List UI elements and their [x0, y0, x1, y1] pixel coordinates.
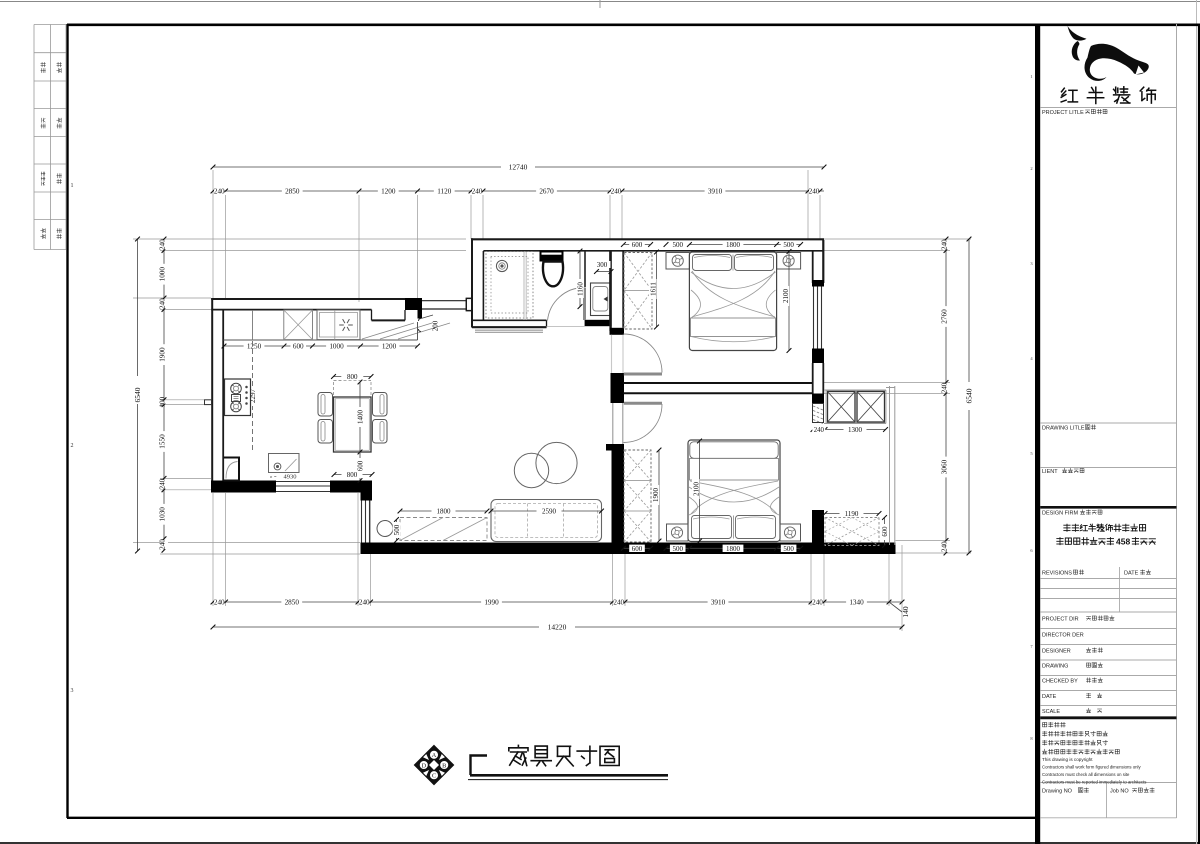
svg-text:1800: 1800	[726, 241, 741, 249]
svg-text:100: 100	[158, 396, 166, 407]
svg-text:2590: 2590	[542, 508, 557, 516]
svg-text:1190: 1190	[845, 510, 859, 518]
svg-text:500: 500	[672, 545, 683, 553]
svg-text:800: 800	[347, 373, 358, 381]
svg-text:240: 240	[809, 188, 820, 196]
svg-text:1: 1	[71, 183, 74, 189]
svg-text:240: 240	[812, 599, 823, 607]
svg-text:DRAWING LITLE: DRAWING LITLE	[1042, 426, 1085, 432]
svg-text:1000: 1000	[329, 343, 344, 351]
svg-text:2850: 2850	[285, 188, 300, 196]
svg-text:Contractors shall work form fi: Contractors shall work form figured dime…	[1042, 765, 1141, 770]
svg-text:200: 200	[432, 320, 440, 331]
svg-text:600: 600	[632, 241, 643, 249]
svg-text:3910: 3910	[708, 188, 723, 196]
svg-text:C: C	[432, 773, 436, 780]
svg-text:1550: 1550	[158, 434, 166, 449]
svg-text:600: 600	[293, 343, 304, 351]
svg-text:LIENT: LIENT	[1042, 469, 1058, 475]
svg-text:500: 500	[672, 241, 683, 249]
svg-text:DATE: DATE	[1042, 694, 1057, 700]
svg-text:458: 458	[1116, 537, 1130, 547]
svg-text:2850: 2850	[285, 599, 300, 607]
svg-text:1800: 1800	[437, 508, 452, 516]
svg-text:1: 1	[1030, 74, 1032, 79]
svg-text:1990: 1990	[484, 599, 499, 607]
svg-text:This drawing is copyright: This drawing is copyright	[1042, 757, 1093, 762]
svg-text:500: 500	[783, 241, 794, 249]
svg-text:240: 240	[158, 298, 166, 309]
svg-text:4930: 4930	[284, 474, 297, 481]
svg-text:DESIGNER: DESIGNER	[1042, 649, 1071, 655]
svg-text:500: 500	[783, 545, 794, 553]
svg-text:240: 240	[940, 239, 948, 250]
svg-text:DRAWING: DRAWING	[1042, 664, 1068, 670]
svg-text:1900: 1900	[652, 488, 660, 503]
svg-text:240: 240	[940, 541, 948, 552]
svg-text:240: 240	[472, 188, 483, 196]
svg-text:1160: 1160	[577, 282, 585, 296]
svg-text:240: 240	[158, 239, 166, 250]
svg-text:240: 240	[158, 478, 166, 489]
svg-text:240: 240	[814, 427, 825, 434]
svg-text:240: 240	[613, 599, 624, 607]
svg-text:240: 240	[611, 188, 622, 196]
svg-text:600: 600	[882, 526, 889, 537]
svg-text:800: 800	[347, 471, 358, 479]
svg-text:600: 600	[357, 460, 365, 471]
svg-text:1300: 1300	[848, 426, 863, 434]
svg-text:DATE: DATE	[1124, 571, 1139, 577]
svg-text:600: 600	[632, 545, 643, 553]
svg-text:140: 140	[901, 606, 910, 618]
svg-text:1120: 1120	[437, 188, 452, 196]
svg-text:1800: 1800	[726, 545, 741, 553]
svg-text:240: 240	[214, 188, 225, 196]
svg-text:DIRECTOR DER: DIRECTOR DER	[1042, 633, 1084, 639]
svg-text:DESIGN FIRM: DESIGN FIRM	[1042, 511, 1078, 517]
svg-text:Drawing NO: Drawing NO	[1042, 789, 1073, 795]
svg-text:1340: 1340	[849, 599, 864, 607]
svg-text:3060: 3060	[940, 459, 948, 474]
svg-text:Job NO: Job NO	[1110, 789, 1129, 795]
svg-text:PROJECT DIR: PROJECT DIR	[1042, 617, 1079, 623]
svg-text:2760: 2760	[940, 309, 948, 324]
svg-text:300: 300	[597, 261, 608, 269]
svg-text:Contractors must check all dim: Contractors must check all dimensions on…	[1042, 772, 1130, 777]
svg-text:500: 500	[393, 524, 401, 535]
svg-text:2670: 2670	[539, 188, 554, 196]
svg-text:6540: 6540	[965, 388, 974, 403]
svg-text:1200: 1200	[381, 188, 396, 196]
svg-text:1000: 1000	[158, 267, 166, 282]
svg-text:PROJECT LITLE: PROJECT LITLE	[1042, 110, 1084, 116]
svg-text:240: 240	[940, 382, 948, 393]
svg-text:6540: 6540	[133, 387, 142, 402]
svg-text:2100: 2100	[782, 289, 790, 304]
svg-text:14220: 14220	[548, 623, 567, 632]
svg-text:1900: 1900	[158, 347, 166, 362]
svg-text:1611: 1611	[649, 282, 657, 296]
svg-text:240: 240	[214, 599, 225, 607]
svg-text:2: 2	[1030, 166, 1032, 171]
svg-text:A: A	[432, 752, 437, 759]
svg-text:REVISIONS: REVISIONS	[1042, 571, 1072, 577]
svg-text:D: D	[422, 762, 427, 769]
svg-text:1030: 1030	[158, 507, 166, 522]
svg-text:2: 2	[71, 443, 74, 449]
svg-text:1250: 1250	[247, 343, 262, 351]
svg-text:3: 3	[71, 688, 74, 694]
svg-text:SCALE: SCALE	[1042, 709, 1060, 715]
svg-text:Contractors must be reported i: Contractors must be reported immediately…	[1042, 780, 1146, 785]
svg-text:1400: 1400	[357, 410, 365, 425]
svg-text:240: 240	[158, 539, 166, 550]
svg-text:1200: 1200	[382, 343, 397, 351]
svg-text:B: B	[442, 762, 446, 769]
svg-text:CHECKED BY: CHECKED BY	[1042, 679, 1078, 685]
svg-text:240: 240	[359, 599, 370, 607]
svg-text:12740: 12740	[509, 163, 528, 172]
svg-text:2100: 2100	[692, 482, 700, 497]
svg-text:3910: 3910	[711, 599, 726, 607]
